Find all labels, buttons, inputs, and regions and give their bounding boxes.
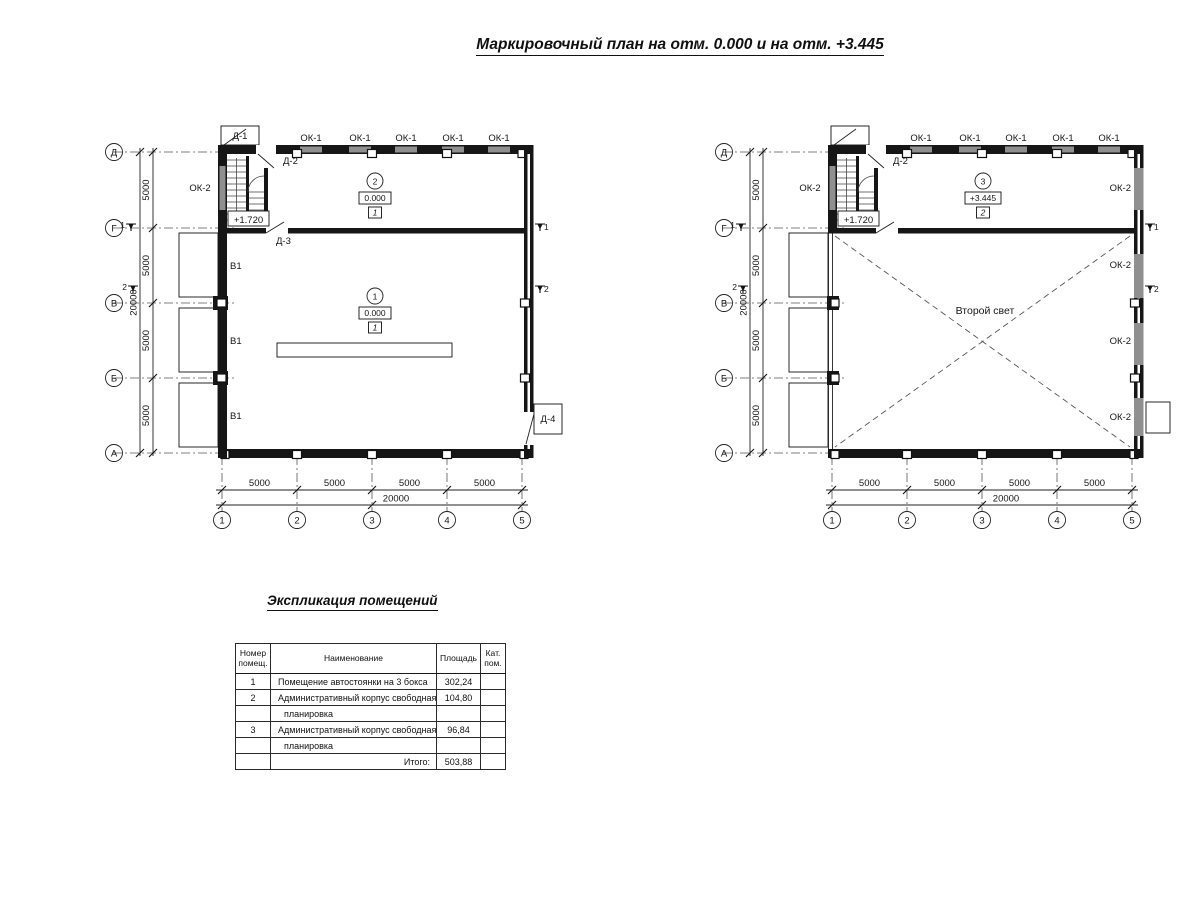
- cell-category: [481, 674, 506, 690]
- dim-bay: 5000: [751, 179, 762, 200]
- section-number: 2: [122, 282, 127, 292]
- header-category: Кат. пом.: [481, 644, 506, 674]
- axis-col-label: 4: [444, 516, 449, 527]
- axis-col-label: 4: [1054, 516, 1059, 527]
- window-label: ОК-1: [910, 133, 931, 144]
- axis-row-label: В: [721, 299, 727, 310]
- dim-bay: 5000: [751, 255, 762, 276]
- dim-total: 20000: [739, 289, 750, 315]
- cell-area: 96,84: [437, 722, 481, 738]
- cell-category: [481, 722, 506, 738]
- header-room-number: Номер помещ.: [236, 644, 271, 674]
- window-label: ОК-1: [1052, 133, 1073, 144]
- cell-room-number: [236, 706, 271, 722]
- axis-row-label: А: [111, 449, 118, 460]
- plan-skeleton: [106, 126, 546, 529]
- schedule-total-row: Итого: 503,88: [236, 754, 506, 770]
- cell-area: 104,80: [437, 690, 481, 706]
- axis-row-label: А: [721, 449, 728, 460]
- axis-col-label: 1: [219, 516, 224, 527]
- cell-area: 302,24: [437, 674, 481, 690]
- room-marker-2: 2 0.000 1: [359, 173, 391, 218]
- dim-bay: 5000: [859, 478, 880, 489]
- axis-row-label: В: [111, 299, 117, 310]
- right-wall: [1131, 145, 1171, 458]
- window-label: ОК-1: [300, 133, 321, 144]
- cell-name: Помещение автостоянки на 3 бокса: [271, 674, 437, 690]
- axis-row-label: Д: [111, 148, 118, 159]
- dim-bay: 5000: [474, 478, 495, 489]
- header-area: Площадь: [437, 644, 481, 674]
- cell-room-number: 1: [236, 674, 271, 690]
- cell-category: [481, 754, 506, 770]
- window-label: ОК-1: [349, 133, 370, 144]
- room-schedule-table: Номер помещ. Наименование Площадь Кат. п…: [235, 643, 506, 770]
- axis-row-label: Б: [721, 374, 727, 385]
- door-label: Д-2: [283, 156, 298, 167]
- room-number: 3: [981, 177, 986, 187]
- void-cross-lines: [835, 236, 1130, 447]
- dim-bay: 5000: [141, 330, 152, 351]
- second-light-label: Второй свет: [956, 305, 1015, 317]
- room-floor: 1: [373, 208, 378, 218]
- dim-bay: 5000: [141, 179, 152, 200]
- section-number: 1: [1154, 222, 1159, 232]
- plan-elevation-0000: Д Г В Б А 1 2 3 4 5 5000 5000 5000 5000 …: [106, 126, 563, 529]
- cell-category: [481, 690, 506, 706]
- room-marker-3: 3 +3.445 2: [965, 173, 1001, 218]
- window-label: ОК-2: [1110, 412, 1131, 423]
- section-number: 1: [544, 222, 549, 232]
- schedule-row: планировка: [236, 706, 506, 722]
- axis-col-label: 5: [1129, 516, 1134, 527]
- cell-room-number: 3: [236, 722, 271, 738]
- total-label: Итого:: [271, 754, 437, 770]
- window-label: ОК-1: [395, 133, 416, 144]
- axis-col-label: 3: [369, 516, 374, 527]
- schedule-title: Экспликация помещений: [267, 593, 438, 608]
- schedule-row: 3 Административный корпус свободная 96,8…: [236, 722, 506, 738]
- section-number: 2: [544, 284, 549, 294]
- axis-labels: Д Г В Б А 1 2 3 4 5: [721, 148, 1135, 527]
- cell-room-number: [236, 754, 271, 770]
- axis-col-label: 3: [979, 516, 984, 527]
- floor-plans-drawing: Д Г В Б А 1 2 3 4 5 5000 5000 5000 5000 …: [0, 0, 1200, 575]
- window-label: ОК-2: [1110, 183, 1131, 194]
- cell-name: Административный корпус свободная: [271, 722, 437, 738]
- dim-bay: 5000: [934, 478, 955, 489]
- cell-area: [437, 706, 481, 722]
- dim-bay: 5000: [751, 405, 762, 426]
- room-elevation: +3.445: [970, 193, 997, 203]
- window-door-labels: ОК-1 ОК-1 ОК-1 ОК-1 ОК-1 ОК-2 Д-1 Д-2 Д-…: [189, 131, 555, 425]
- axis-row-label: Д: [721, 148, 728, 159]
- dim-bay: 5000: [324, 478, 345, 489]
- axis-col-label: 5: [519, 516, 524, 527]
- window-label: ОК-1: [1005, 133, 1026, 144]
- cell-category: [481, 706, 506, 722]
- room-elevation: 0.000: [364, 193, 386, 203]
- schedule-header-row: Номер помещ. Наименование Площадь Кат. п…: [236, 644, 506, 674]
- drawing-sheet: { "title": "Маркировочный план на отм. 0…: [0, 0, 1200, 900]
- cell-room-number: 2: [236, 690, 271, 706]
- axis-col-label: 1: [829, 516, 834, 527]
- window-label: ОК-1: [1098, 133, 1119, 144]
- window-label: ОК-1: [442, 133, 463, 144]
- left-wall: [827, 145, 839, 449]
- window-label: ОК-2: [1110, 336, 1131, 347]
- schedule-row: 1 Помещение автостоянки на 3 бокса 302,2…: [236, 674, 506, 690]
- axis-col-label: 2: [904, 516, 909, 527]
- axis-row-label: Б: [111, 374, 117, 385]
- axis-row-label: Г: [721, 224, 726, 235]
- axis-labels: Д Г В Б А 1 2 3 4 5: [111, 148, 525, 527]
- door-label: Д-1: [233, 131, 248, 142]
- dim-bay: 5000: [399, 478, 420, 489]
- axis-row-label: Г: [111, 224, 116, 235]
- window-door-labels: ОК-1 ОК-1 ОК-1 ОК-1 ОК-1 ОК-2 ОК-2 ОК-2 …: [799, 133, 1131, 423]
- cell-name: Административный корпус свободная: [271, 690, 437, 706]
- room-elevation: 0.000: [364, 308, 386, 318]
- window-label: ОК-2: [799, 183, 820, 194]
- total-value: 503,88: [437, 754, 481, 770]
- schedule-row: 2 Административный корпус свободная 104,…: [236, 690, 506, 706]
- room-floor: 1: [373, 323, 378, 333]
- cell-room-number: [236, 738, 271, 754]
- cell-category: [481, 738, 506, 754]
- dim-total: 20000: [383, 494, 409, 505]
- section-number: 2: [732, 282, 737, 292]
- section-number: 1: [120, 220, 125, 230]
- dim-bay: 5000: [1084, 478, 1105, 489]
- right-wall: [521, 145, 563, 458]
- dim-total: 20000: [129, 289, 140, 315]
- cell-name: планировка: [271, 706, 437, 722]
- door-label: Д-3: [276, 236, 291, 247]
- dim-bay: 5000: [249, 478, 270, 489]
- section-number: 1: [730, 220, 735, 230]
- door-label: Д-4: [541, 414, 556, 425]
- schedule-row: планировка: [236, 738, 506, 754]
- room-number: 1: [373, 292, 378, 302]
- window-label: ОК-2: [189, 183, 210, 194]
- room-floor: 2: [980, 208, 986, 218]
- stair-level-label: +1.720: [234, 215, 263, 226]
- gate-label: В1: [230, 411, 242, 422]
- gate-label: В1: [230, 261, 242, 272]
- dim-total: 20000: [993, 494, 1019, 505]
- door-label: Д-2: [893, 156, 908, 167]
- plan-elevation-3445: Д Г В Б А 1 2 3 4 5 5000 5000 5000 5000 …: [716, 126, 1171, 529]
- floor-pit: [277, 343, 452, 357]
- header-name: Наименование: [271, 644, 437, 674]
- cell-name: планировка: [271, 738, 437, 754]
- gate-label: В1: [230, 336, 242, 347]
- room-marker-1: 1 0.000 1: [359, 288, 391, 333]
- window-label: ОК-1: [959, 133, 980, 144]
- window-label: ОК-2: [1110, 260, 1131, 271]
- dim-bay: 5000: [141, 255, 152, 276]
- cell-area: [437, 738, 481, 754]
- axis-col-label: 2: [294, 516, 299, 527]
- section-number: 2: [1154, 284, 1159, 294]
- window-label: ОК-1: [488, 133, 509, 144]
- stair-level-label: +1.720: [844, 215, 873, 226]
- dim-bay: 5000: [1009, 478, 1030, 489]
- dim-bay: 5000: [141, 405, 152, 426]
- dim-bay: 5000: [751, 330, 762, 351]
- plan-skeleton: [716, 126, 1156, 529]
- room-number: 2: [373, 177, 378, 187]
